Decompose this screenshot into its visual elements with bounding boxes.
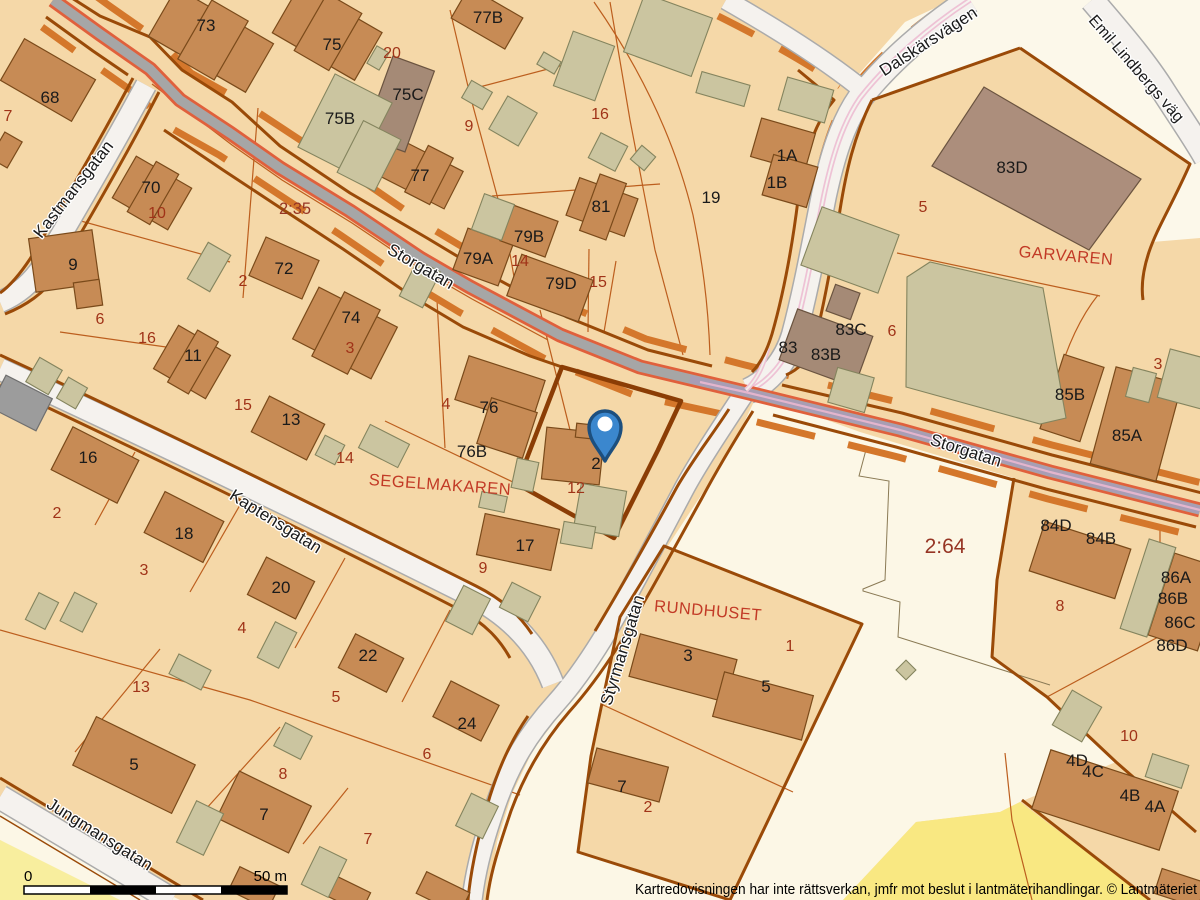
svg-text:10: 10 bbox=[148, 205, 166, 222]
svg-text:84D: 84D bbox=[1040, 516, 1071, 535]
svg-text:79A: 79A bbox=[463, 249, 494, 268]
svg-text:7: 7 bbox=[4, 108, 13, 125]
svg-text:5: 5 bbox=[761, 677, 770, 696]
svg-text:72: 72 bbox=[275, 259, 294, 278]
svg-text:75C: 75C bbox=[392, 85, 423, 104]
svg-text:4C: 4C bbox=[1082, 762, 1104, 781]
svg-text:15: 15 bbox=[589, 274, 607, 291]
svg-text:85B: 85B bbox=[1055, 385, 1085, 404]
svg-text:20: 20 bbox=[272, 578, 291, 597]
svg-text:1B: 1B bbox=[767, 173, 788, 192]
svg-text:18: 18 bbox=[175, 524, 194, 543]
svg-text:Kartredovisningen har inte rät: Kartredovisningen har inte rättsverkan, … bbox=[635, 881, 1198, 898]
svg-text:11: 11 bbox=[184, 346, 202, 365]
svg-text:17: 17 bbox=[516, 536, 535, 555]
svg-text:50 m: 50 m bbox=[254, 868, 287, 885]
svg-text:79D: 79D bbox=[545, 274, 576, 293]
svg-text:20: 20 bbox=[383, 45, 401, 62]
svg-text:1A: 1A bbox=[777, 146, 798, 165]
svg-text:9: 9 bbox=[479, 560, 488, 577]
svg-text:86A: 86A bbox=[1161, 568, 1192, 587]
svg-text:15: 15 bbox=[234, 397, 252, 414]
svg-text:5: 5 bbox=[332, 689, 341, 706]
svg-text:70: 70 bbox=[142, 178, 161, 197]
svg-text:7: 7 bbox=[617, 777, 626, 796]
svg-text:4A: 4A bbox=[1145, 797, 1166, 816]
svg-text:3: 3 bbox=[140, 562, 149, 579]
svg-text:19: 19 bbox=[702, 188, 721, 207]
svg-text:2:64: 2:64 bbox=[925, 535, 966, 558]
svg-text:68: 68 bbox=[41, 88, 60, 107]
svg-text:4: 4 bbox=[238, 620, 247, 637]
svg-text:13: 13 bbox=[132, 679, 150, 696]
svg-text:13: 13 bbox=[282, 410, 301, 429]
svg-text:5: 5 bbox=[919, 199, 928, 216]
svg-text:9: 9 bbox=[465, 118, 474, 135]
svg-text:6: 6 bbox=[888, 323, 897, 340]
svg-text:8: 8 bbox=[1056, 598, 1065, 615]
svg-text:22: 22 bbox=[359, 646, 378, 665]
svg-text:2: 2 bbox=[591, 454, 600, 473]
svg-text:74: 74 bbox=[342, 308, 361, 327]
svg-text:2:35: 2:35 bbox=[279, 200, 311, 218]
svg-text:7: 7 bbox=[364, 831, 373, 848]
svg-text:86C: 86C bbox=[1164, 613, 1195, 632]
svg-text:81: 81 bbox=[592, 197, 611, 216]
svg-text:83D: 83D bbox=[996, 158, 1027, 177]
svg-text:10: 10 bbox=[1120, 728, 1138, 745]
svg-text:83: 83 bbox=[779, 338, 798, 357]
svg-text:83B: 83B bbox=[811, 345, 841, 364]
svg-text:85A: 85A bbox=[1112, 426, 1143, 445]
svg-text:3: 3 bbox=[346, 340, 355, 357]
svg-text:16: 16 bbox=[138, 330, 156, 347]
svg-text:24: 24 bbox=[458, 714, 477, 733]
svg-text:84B: 84B bbox=[1086, 529, 1116, 548]
svg-text:73: 73 bbox=[197, 16, 216, 35]
svg-text:6: 6 bbox=[423, 746, 432, 763]
svg-text:75: 75 bbox=[323, 35, 342, 54]
svg-text:3: 3 bbox=[683, 646, 692, 665]
svg-text:86B: 86B bbox=[1158, 589, 1188, 608]
svg-text:3: 3 bbox=[1154, 356, 1163, 373]
svg-text:14: 14 bbox=[511, 253, 529, 270]
svg-text:75B: 75B bbox=[325, 109, 355, 128]
svg-text:9: 9 bbox=[68, 255, 77, 274]
svg-text:12: 12 bbox=[567, 480, 585, 497]
svg-text:0: 0 bbox=[24, 868, 32, 885]
svg-text:16: 16 bbox=[591, 106, 609, 123]
svg-text:76: 76 bbox=[480, 398, 499, 417]
svg-text:2: 2 bbox=[53, 505, 62, 522]
svg-text:6: 6 bbox=[96, 311, 105, 328]
svg-text:77B: 77B bbox=[473, 8, 503, 27]
svg-text:2: 2 bbox=[644, 799, 653, 816]
svg-text:4B: 4B bbox=[1120, 786, 1141, 805]
svg-text:14: 14 bbox=[336, 450, 354, 467]
svg-text:83C: 83C bbox=[835, 320, 866, 339]
svg-text:76B: 76B bbox=[457, 442, 487, 461]
svg-text:16: 16 bbox=[79, 448, 98, 467]
svg-text:5: 5 bbox=[129, 755, 138, 774]
svg-text:4: 4 bbox=[442, 396, 451, 413]
svg-text:7: 7 bbox=[259, 805, 268, 824]
svg-text:77: 77 bbox=[411, 166, 430, 185]
svg-text:79B: 79B bbox=[514, 227, 544, 246]
svg-text:8: 8 bbox=[279, 766, 288, 783]
svg-text:1: 1 bbox=[786, 638, 795, 655]
svg-text:2: 2 bbox=[239, 273, 248, 290]
svg-text:86D: 86D bbox=[1156, 636, 1187, 655]
